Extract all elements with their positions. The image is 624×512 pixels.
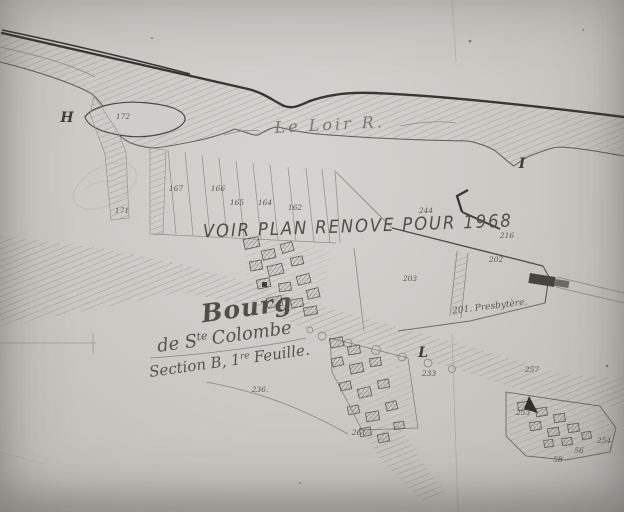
section-letter: I bbox=[518, 156, 526, 172]
scanned-cadastral-map: Le Loir R. VOIR PLAN RENOVE POUR 1968 Bo… bbox=[0, 0, 624, 512]
building-footprint bbox=[529, 421, 541, 430]
building-footprint bbox=[365, 411, 379, 422]
building-footprint bbox=[339, 381, 351, 391]
parcel-number: 171 bbox=[115, 206, 129, 215]
presbytery-building-wing bbox=[554, 279, 569, 288]
lane-hatch-east bbox=[150, 148, 166, 234]
paper-crease bbox=[452, 0, 456, 62]
paper-scratch bbox=[0, 452, 44, 464]
section-letter: H bbox=[59, 110, 74, 126]
map-drawing: Le Loir R. VOIR PLAN RENOVE POUR 1968 Bo… bbox=[0, 0, 624, 512]
building-solid bbox=[262, 282, 267, 287]
parcel-number: 216 bbox=[499, 231, 515, 240]
parcel-number: 236. bbox=[251, 385, 269, 394]
building-footprint bbox=[553, 413, 565, 422]
parcel-number: 56 bbox=[574, 446, 584, 455]
paper-speck bbox=[606, 365, 609, 368]
building-footprint bbox=[377, 379, 389, 389]
parcel-number: 202 bbox=[488, 255, 504, 264]
building-footprint bbox=[377, 433, 389, 443]
building-footprint bbox=[347, 345, 360, 355]
parcel-number: 162 bbox=[288, 203, 303, 212]
parcel-number: 254 bbox=[596, 436, 612, 445]
parcel-number: 257 bbox=[524, 365, 540, 374]
parcel-number: 203 bbox=[402, 274, 418, 283]
parcel-number: 167 bbox=[169, 184, 184, 193]
ink-mark bbox=[457, 190, 468, 212]
building-footprint bbox=[369, 357, 381, 366]
paper-speck bbox=[469, 40, 472, 43]
parcel-number: 164 bbox=[258, 198, 273, 207]
building-footprint bbox=[567, 423, 579, 432]
parcel-number: 261 bbox=[351, 428, 366, 437]
parcel-number: 166 bbox=[211, 184, 226, 193]
renovation-overlay-note: VOIR PLAN RENOVE POUR 1968 bbox=[203, 211, 514, 243]
building-footprint bbox=[582, 431, 592, 439]
building-footprint bbox=[394, 421, 405, 429]
paper-speck bbox=[582, 29, 584, 31]
parcel-number: 244 bbox=[418, 206, 434, 215]
faint-stamp bbox=[66, 153, 144, 218]
lane-to-east bbox=[556, 287, 624, 303]
parcel-number: 253 bbox=[515, 408, 531, 417]
parcel-boundary-curve bbox=[206, 382, 348, 434]
paper-speck bbox=[299, 482, 301, 484]
building-footprint bbox=[347, 405, 359, 415]
parcel-number: 233 bbox=[421, 369, 437, 378]
building-footprint bbox=[249, 260, 262, 271]
building-footprint bbox=[547, 427, 559, 436]
parcel-number: 58 bbox=[553, 455, 563, 464]
parcel-number: 172 bbox=[116, 112, 131, 121]
paper-speck bbox=[151, 37, 153, 39]
south-road-hatch bbox=[362, 424, 448, 502]
building-footprint bbox=[562, 437, 573, 445]
building-footprint bbox=[303, 306, 317, 316]
parcel-number: 165 bbox=[230, 198, 245, 207]
building-footprint bbox=[544, 439, 554, 447]
section-letter: L bbox=[417, 345, 428, 361]
presbytery-building bbox=[528, 273, 555, 287]
